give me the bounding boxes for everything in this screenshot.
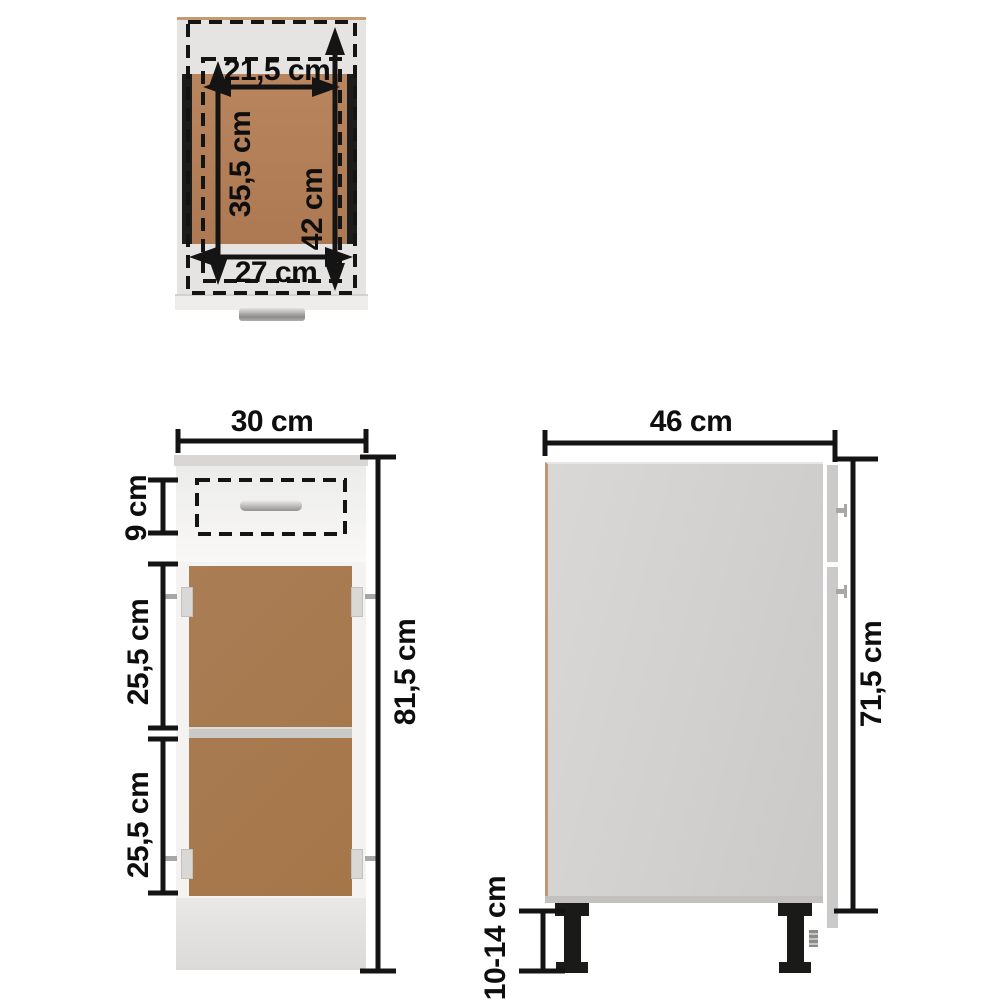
top-view-handle: [239, 308, 305, 321]
label-lower-compartment-height: 25,5 cm: [122, 772, 156, 879]
label-drawer-outer-depth: 42 cm: [296, 168, 330, 251]
dim-bracket-leg-height: [519, 905, 565, 977]
hinge-top-left: [181, 587, 193, 617]
right-leg-stem: [787, 915, 804, 964]
product-dimension-diagram: 21,5 cm 35,5 cm 42 cm 27 cm 30 cm 9 cm 2…: [0, 0, 1000, 1000]
label-drawer-inner-depth: 35,5 cm: [224, 111, 258, 218]
label-total-height: 81,5 cm: [389, 619, 423, 726]
label-front-width: 30 cm: [231, 405, 314, 439]
side-view-bottom-edge: [545, 896, 823, 903]
label-drawer-height: 9 cm: [120, 475, 154, 541]
label-drawer-inner-width: 21,5 cm: [224, 54, 331, 88]
label-leg-height: 10-14 cm: [479, 876, 513, 1000]
front-view-shelf: [189, 727, 352, 738]
hinge-bottom-left: [181, 849, 193, 879]
label-side-depth: 46 cm: [650, 405, 733, 439]
right-leg-adjuster-screw: [809, 930, 818, 947]
label-upper-compartment-height: 25,5 cm: [122, 599, 156, 706]
front-view-base-panel: [176, 898, 366, 970]
label-drawer-outer-width: 27 cm: [235, 256, 318, 290]
side-view-panel: [545, 462, 823, 903]
right-leg-foot: [779, 962, 811, 973]
left-leg-stem: [564, 915, 581, 964]
front-view-handle: [240, 500, 302, 511]
front-view-countertop-edge: [174, 455, 368, 466]
label-body-height: 71,5 cm: [855, 621, 889, 728]
